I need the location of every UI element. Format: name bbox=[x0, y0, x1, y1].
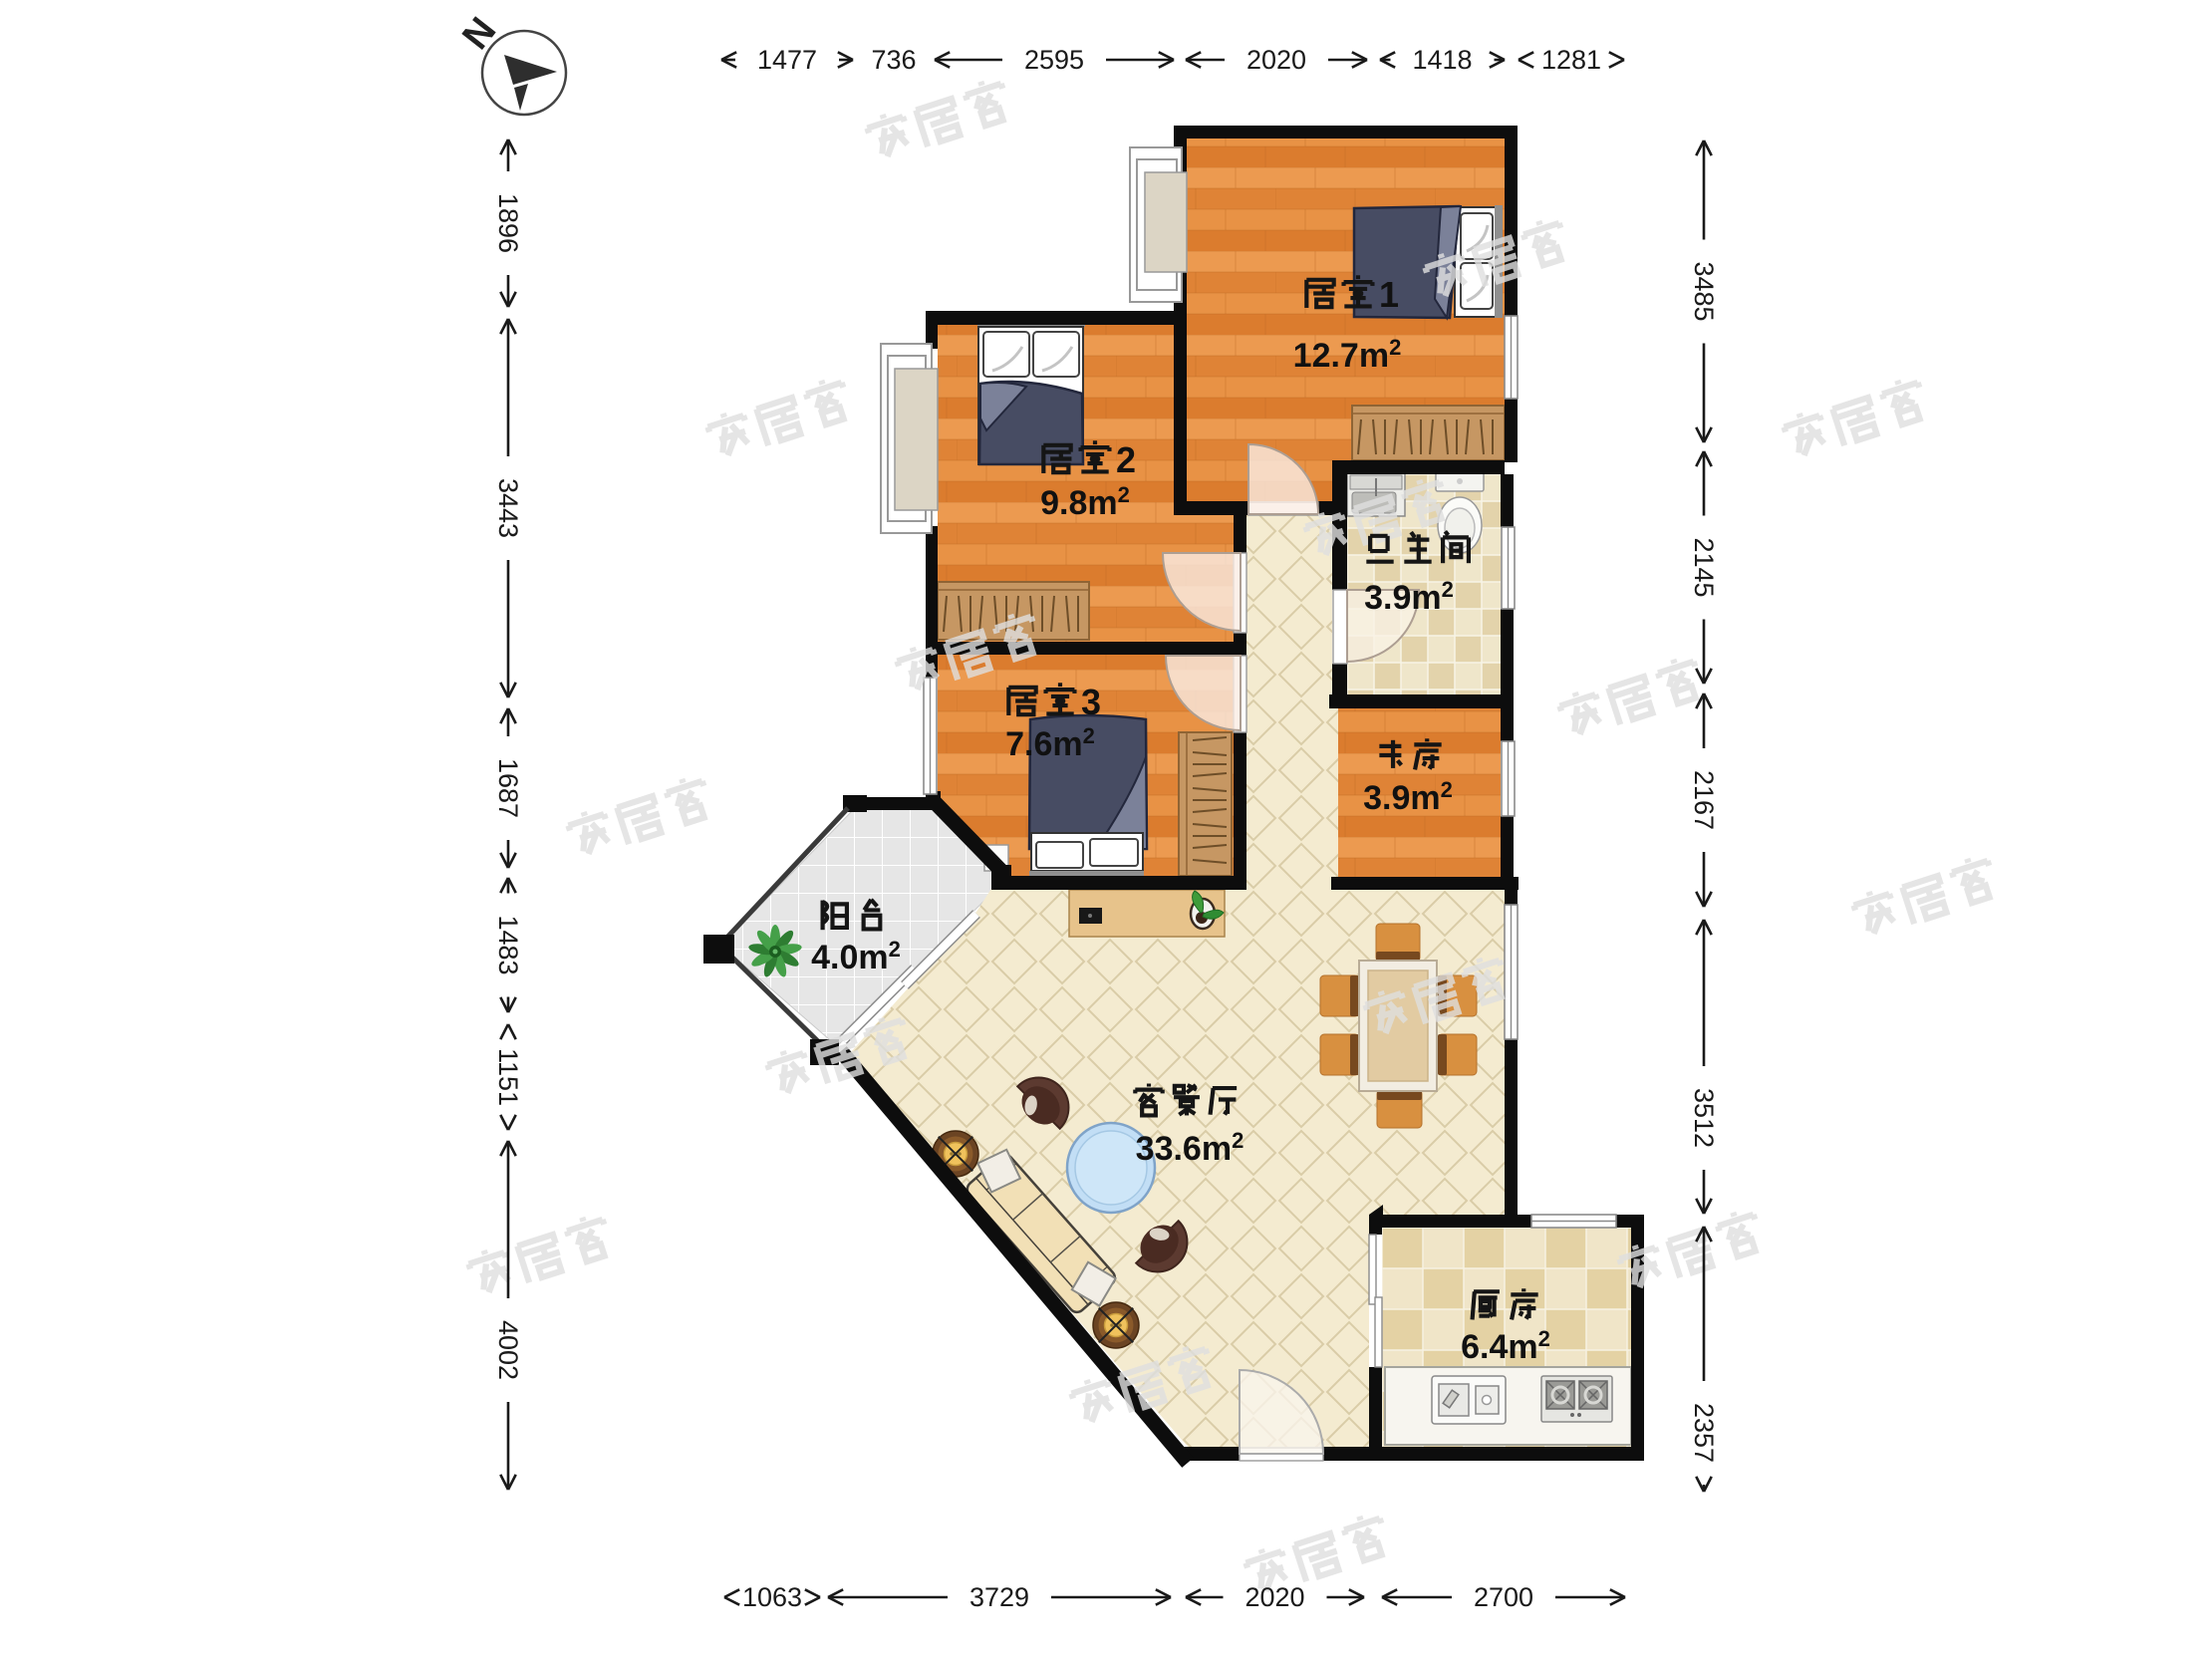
svg-text:3512: 3512 bbox=[1689, 1088, 1719, 1148]
svg-text:2145: 2145 bbox=[1689, 537, 1719, 597]
svg-text:1151: 1151 bbox=[493, 1048, 523, 1106]
svg-text:1281: 1281 bbox=[1541, 45, 1601, 75]
svg-text:1: 1 bbox=[1379, 274, 1399, 315]
svg-text:6.4m2: 6.4m2 bbox=[1461, 1326, 1550, 1366]
svg-text:2357: 2357 bbox=[1689, 1403, 1719, 1463]
svg-text:3: 3 bbox=[1081, 682, 1101, 722]
svg-text:1687: 1687 bbox=[493, 758, 523, 818]
svg-text:2595: 2595 bbox=[1024, 45, 1084, 75]
svg-text:3729: 3729 bbox=[969, 1582, 1029, 1612]
svg-text:1418: 1418 bbox=[1412, 45, 1472, 75]
svg-text:2020: 2020 bbox=[1246, 45, 1306, 75]
svg-text:12.7m2: 12.7m2 bbox=[1293, 335, 1402, 375]
svg-text:2: 2 bbox=[1116, 439, 1136, 480]
svg-text:4.0m2: 4.0m2 bbox=[811, 937, 901, 976]
svg-text:33.6m2: 33.6m2 bbox=[1136, 1128, 1244, 1168]
svg-text:2700: 2700 bbox=[1474, 1582, 1533, 1612]
svg-text:1896: 1896 bbox=[493, 193, 523, 253]
svg-text:7.6m2: 7.6m2 bbox=[1005, 723, 1095, 763]
svg-text:736: 736 bbox=[871, 45, 916, 75]
svg-text:9.8m2: 9.8m2 bbox=[1040, 482, 1130, 522]
svg-text:3.9m2: 3.9m2 bbox=[1363, 777, 1453, 817]
svg-text:1063: 1063 bbox=[742, 1582, 802, 1612]
svg-text:1483: 1483 bbox=[493, 915, 523, 974]
svg-text:1477: 1477 bbox=[757, 45, 817, 75]
svg-text:2167: 2167 bbox=[1689, 770, 1719, 830]
svg-text:4002: 4002 bbox=[493, 1320, 523, 1380]
svg-text:3485: 3485 bbox=[1689, 261, 1719, 321]
svg-text:3.9m2: 3.9m2 bbox=[1364, 577, 1454, 617]
svg-text:3443: 3443 bbox=[493, 478, 523, 538]
svg-text:2020: 2020 bbox=[1244, 1582, 1304, 1612]
